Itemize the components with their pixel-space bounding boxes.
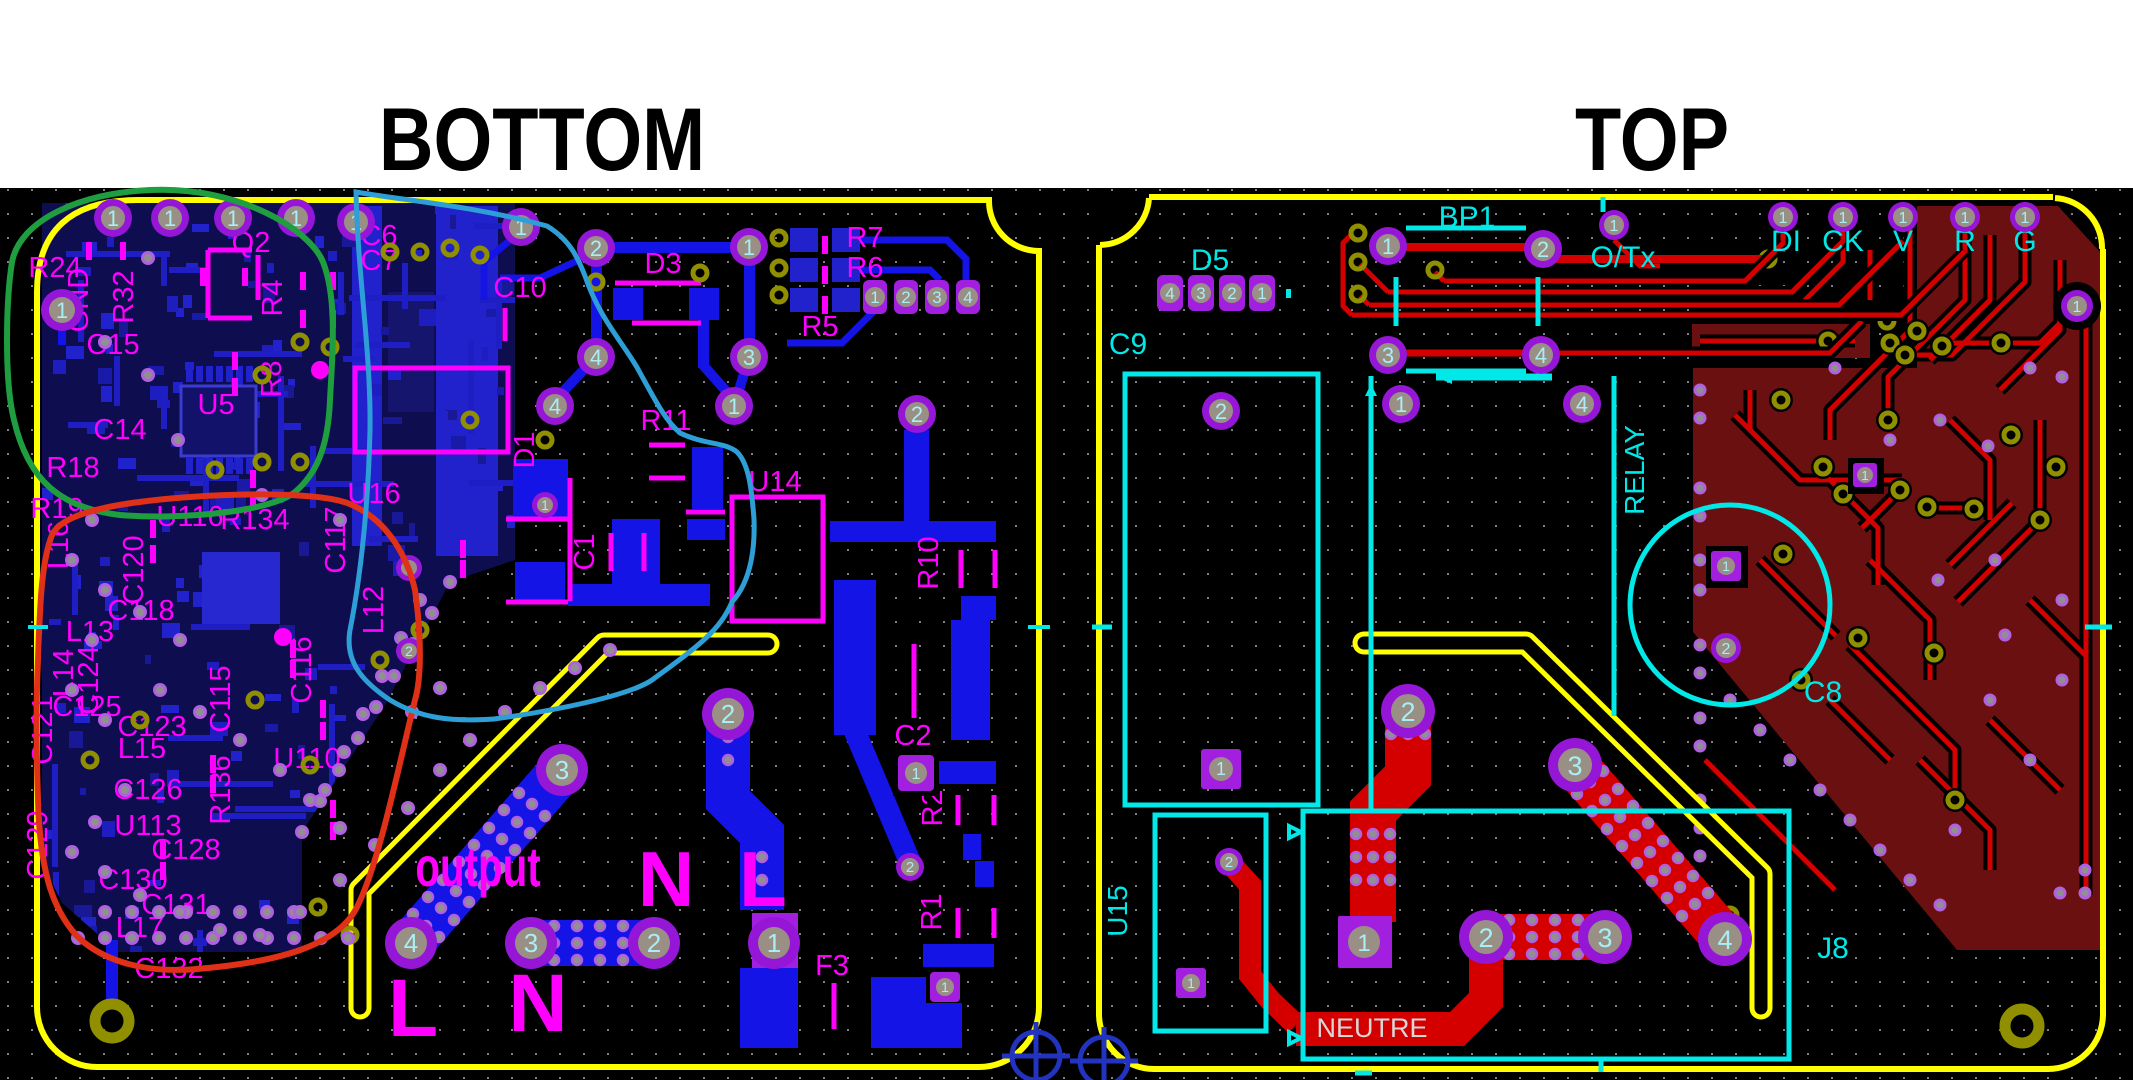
svg-text:C8: C8 bbox=[1804, 676, 1842, 709]
svg-text:2: 2 bbox=[1215, 399, 1227, 424]
svg-text:1: 1 bbox=[1899, 210, 1908, 227]
svg-text:4: 4 bbox=[404, 928, 418, 958]
svg-text:2: 2 bbox=[1227, 284, 1236, 303]
svg-text:N: N bbox=[508, 958, 567, 1049]
svg-text:4: 4 bbox=[1717, 925, 1732, 955]
svg-text:3: 3 bbox=[1196, 284, 1205, 303]
svg-text:1: 1 bbox=[227, 206, 239, 231]
svg-text:2: 2 bbox=[1225, 854, 1233, 871]
svg-text:R1: R1 bbox=[916, 893, 948, 930]
svg-text:4: 4 bbox=[1535, 343, 1547, 368]
svg-text:C121: C121 bbox=[27, 695, 59, 764]
svg-text:1: 1 bbox=[1861, 468, 1868, 483]
svg-text:3: 3 bbox=[1382, 343, 1394, 368]
svg-text:3: 3 bbox=[555, 755, 569, 785]
svg-text:output: output bbox=[415, 837, 540, 899]
svg-text:U5: U5 bbox=[197, 389, 234, 421]
svg-text:3: 3 bbox=[1567, 751, 1582, 781]
svg-text:1: 1 bbox=[870, 288, 879, 307]
svg-text:3: 3 bbox=[743, 345, 755, 370]
svg-text:L: L bbox=[739, 835, 787, 923]
svg-text:C14: C14 bbox=[93, 414, 146, 446]
svg-text:R4: R4 bbox=[257, 279, 289, 316]
svg-text:1: 1 bbox=[1382, 234, 1394, 259]
svg-text:L12: L12 bbox=[358, 586, 390, 634]
svg-text:1: 1 bbox=[941, 979, 949, 995]
svg-text:2: 2 bbox=[405, 643, 413, 659]
svg-text:4: 4 bbox=[1576, 392, 1588, 417]
svg-text:3: 3 bbox=[932, 288, 941, 307]
svg-text:1: 1 bbox=[2021, 210, 2030, 227]
svg-text:C10: C10 bbox=[493, 272, 546, 304]
svg-text:1: 1 bbox=[767, 928, 781, 958]
svg-text:R10: R10 bbox=[913, 536, 945, 589]
svg-text:2: 2 bbox=[901, 288, 910, 307]
svg-text:R6: R6 bbox=[846, 252, 883, 284]
svg-text:2: 2 bbox=[1478, 923, 1493, 953]
svg-text:2: 2 bbox=[911, 402, 923, 427]
svg-text:NEUTRE: NEUTRE bbox=[1316, 1013, 1427, 1043]
svg-text:3: 3 bbox=[1597, 923, 1612, 953]
svg-text:L: L bbox=[388, 963, 438, 1054]
svg-text:C2: C2 bbox=[894, 720, 931, 752]
svg-text:R5: R5 bbox=[801, 311, 838, 343]
svg-text:3: 3 bbox=[524, 928, 538, 958]
svg-text:1: 1 bbox=[541, 497, 549, 513]
svg-text:C1: C1 bbox=[569, 533, 601, 570]
svg-text:C9: C9 bbox=[1109, 328, 1147, 361]
svg-text:J8: J8 bbox=[1817, 932, 1849, 965]
svg-text:RELAY: RELAY bbox=[1619, 425, 1650, 515]
svg-text:2: 2 bbox=[1537, 237, 1549, 262]
svg-text:1: 1 bbox=[56, 298, 68, 323]
svg-text:C128: C128 bbox=[151, 834, 220, 866]
svg-text:BP1: BP1 bbox=[1439, 201, 1496, 234]
svg-text:L15: L15 bbox=[118, 733, 166, 765]
svg-text:4: 4 bbox=[1165, 284, 1174, 303]
svg-text:BOTTOM: BOTTOM bbox=[379, 89, 705, 189]
svg-text:1: 1 bbox=[164, 206, 176, 231]
svg-text:4: 4 bbox=[963, 288, 972, 307]
svg-text:1: 1 bbox=[1722, 558, 1730, 574]
svg-text:1: 1 bbox=[1779, 210, 1788, 227]
svg-text:1: 1 bbox=[107, 206, 119, 231]
svg-text:4: 4 bbox=[549, 394, 561, 419]
svg-text:R7: R7 bbox=[846, 222, 883, 254]
svg-text:1: 1 bbox=[743, 235, 755, 260]
svg-text:1: 1 bbox=[2073, 299, 2082, 316]
svg-text:R136: R136 bbox=[205, 755, 237, 824]
svg-text:1: 1 bbox=[1395, 392, 1407, 417]
svg-text:R32: R32 bbox=[108, 270, 140, 323]
svg-text:O/Tx: O/Tx bbox=[1591, 241, 1656, 274]
svg-text:U15: U15 bbox=[1102, 885, 1133, 936]
svg-text:R19: R19 bbox=[30, 493, 83, 525]
svg-text:C116: C116 bbox=[286, 636, 318, 703]
svg-text:1: 1 bbox=[1257, 284, 1266, 303]
svg-text:2: 2 bbox=[1400, 697, 1415, 727]
svg-text:1: 1 bbox=[1187, 975, 1195, 991]
svg-text:1: 1 bbox=[1610, 218, 1619, 235]
svg-text:4: 4 bbox=[590, 345, 602, 370]
svg-text:F3: F3 bbox=[815, 950, 849, 982]
svg-text:2: 2 bbox=[1722, 641, 1731, 658]
svg-text:D3: D3 bbox=[644, 248, 681, 280]
svg-text:2: 2 bbox=[721, 699, 735, 729]
svg-text:2: 2 bbox=[647, 928, 661, 958]
svg-text:R18: R18 bbox=[46, 452, 99, 484]
svg-text:1: 1 bbox=[1357, 930, 1370, 957]
svg-text:C115: C115 bbox=[205, 665, 237, 732]
svg-text:2: 2 bbox=[590, 236, 602, 261]
svg-text:U14: U14 bbox=[748, 466, 801, 498]
svg-text:2: 2 bbox=[906, 859, 914, 876]
svg-text:D5: D5 bbox=[1191, 244, 1229, 277]
svg-text:1: 1 bbox=[912, 766, 921, 783]
svg-text:TOP: TOP bbox=[1575, 89, 1729, 189]
svg-text:1: 1 bbox=[1961, 210, 1970, 227]
svg-text:1: 1 bbox=[728, 394, 740, 419]
svg-text:C15: C15 bbox=[86, 329, 139, 361]
svg-text:N: N bbox=[638, 835, 694, 923]
svg-text:1: 1 bbox=[1839, 210, 1848, 227]
svg-text:1: 1 bbox=[1216, 759, 1226, 779]
